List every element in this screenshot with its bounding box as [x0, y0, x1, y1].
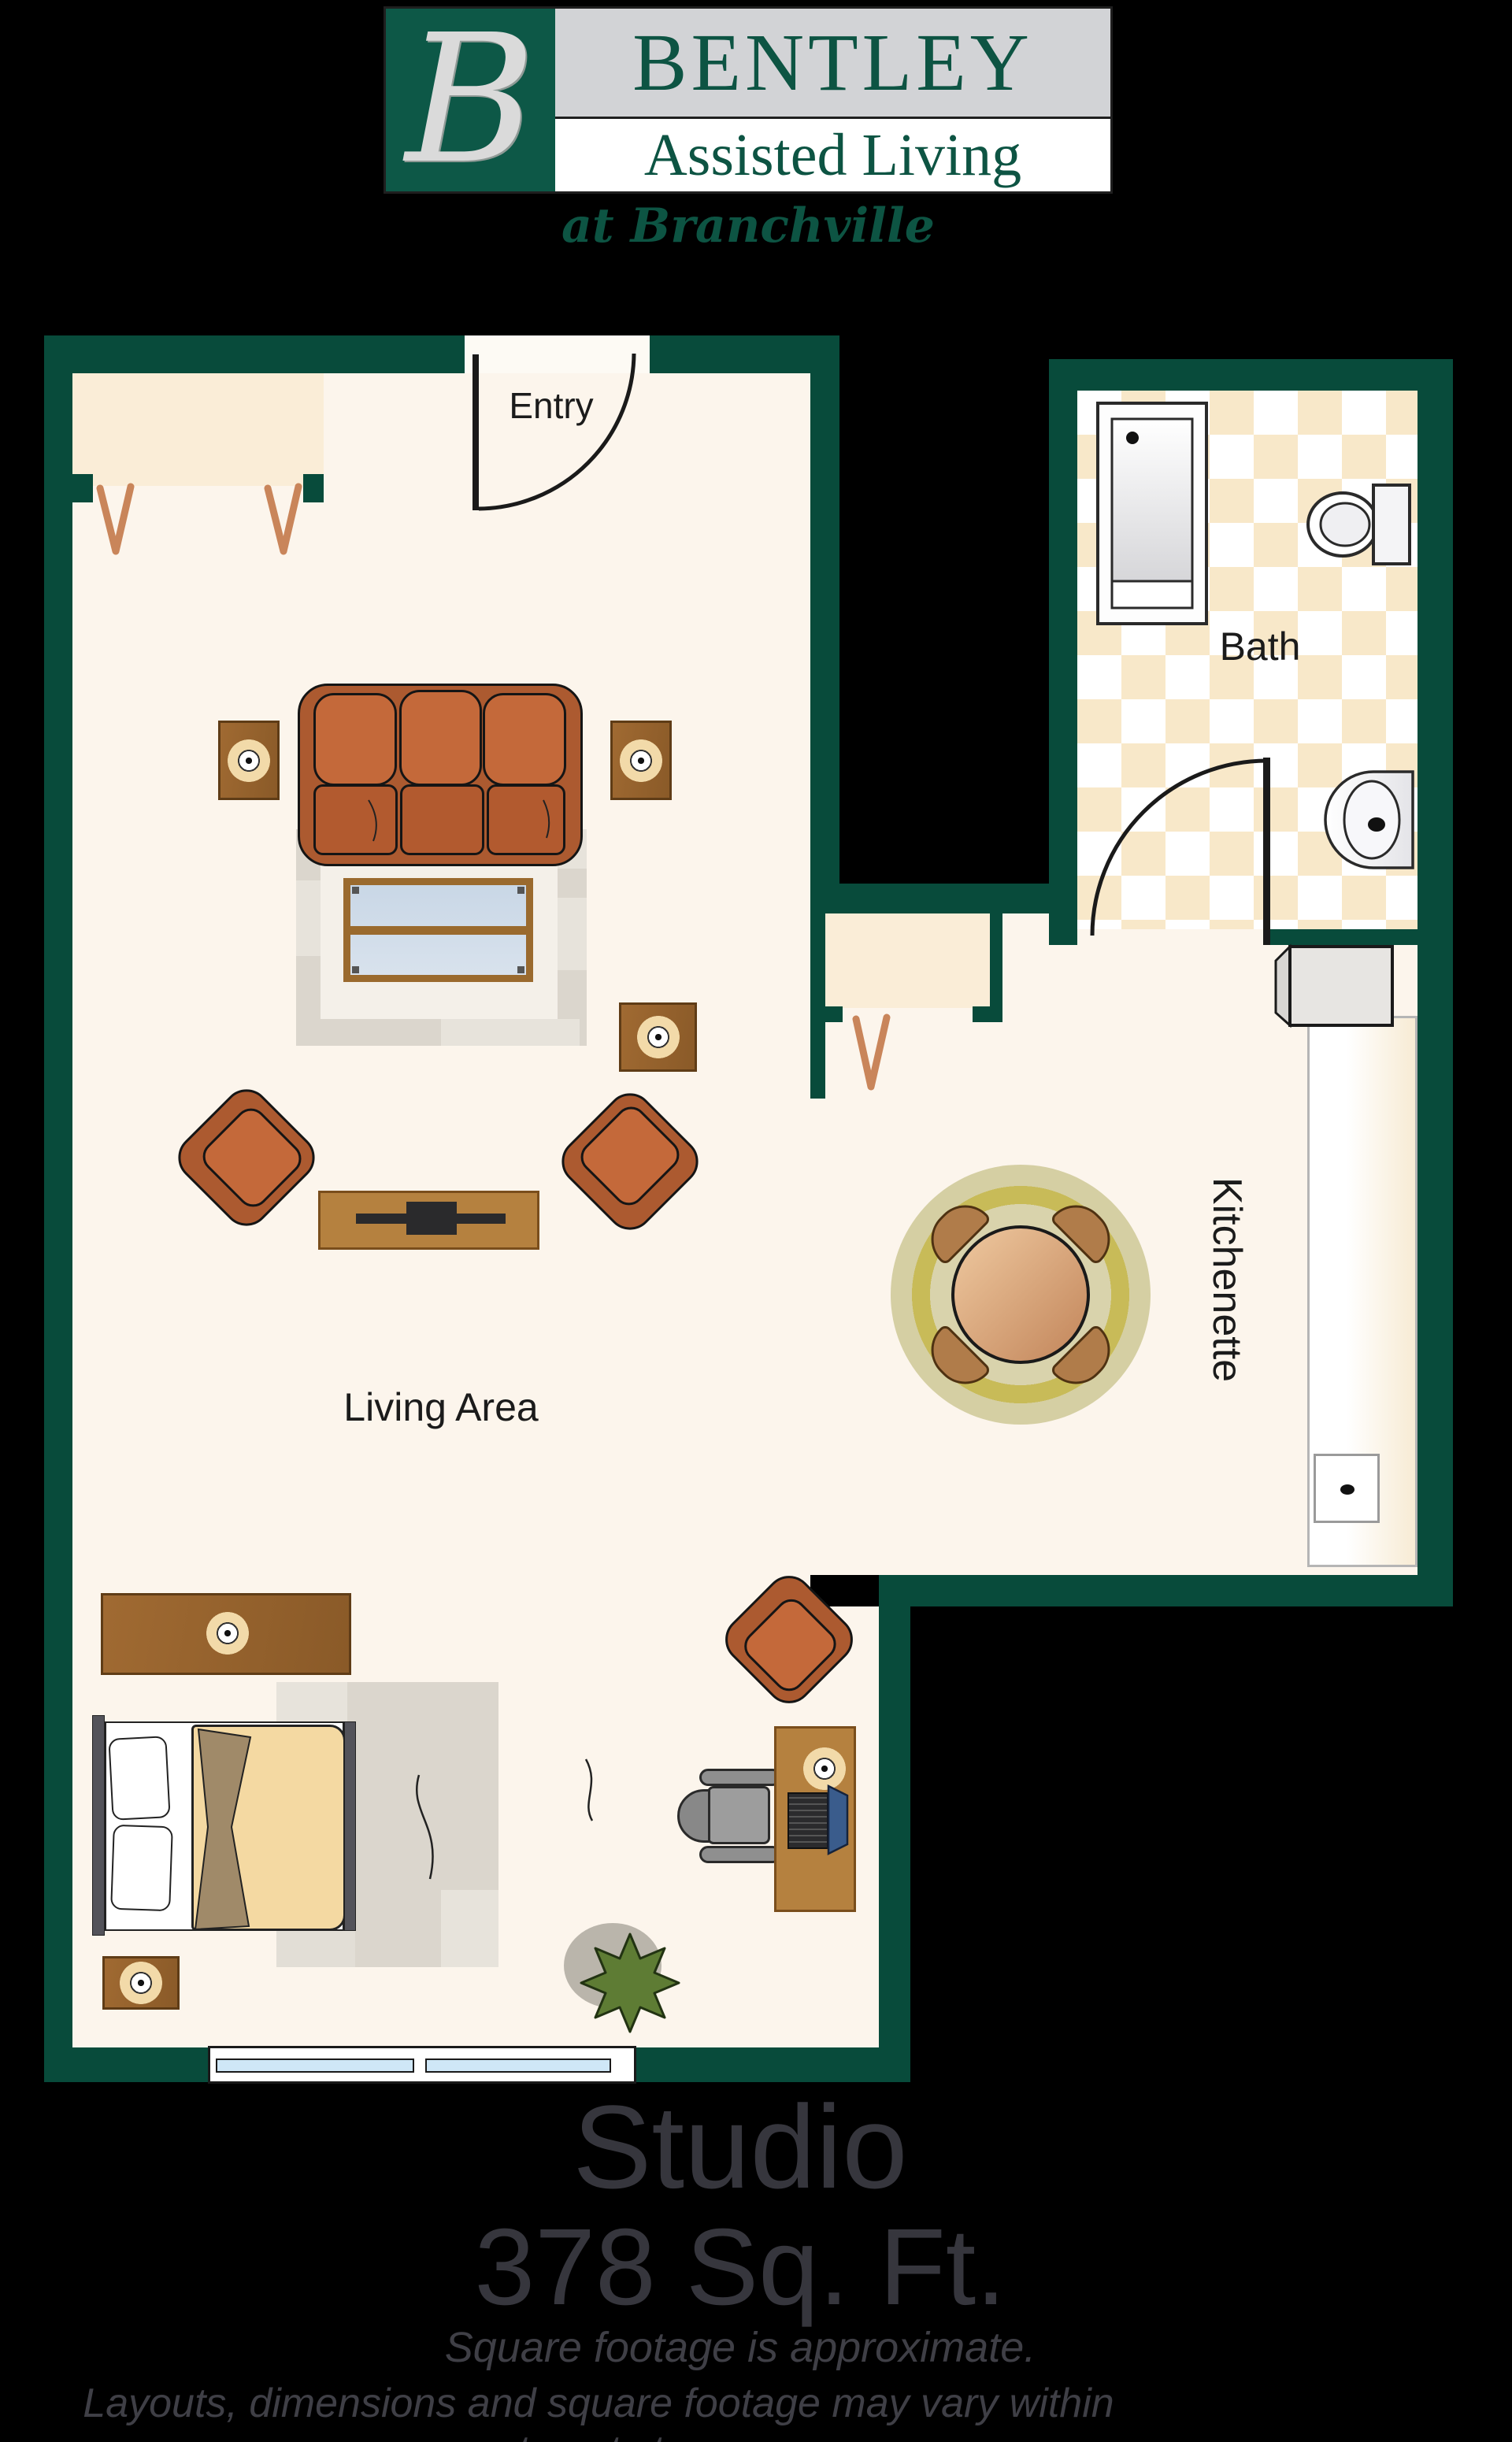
- plant-icon: [564, 1923, 679, 2032]
- plan-title: Studio: [0, 2079, 1480, 2215]
- entry-door-icon: [472, 354, 634, 510]
- fridge-icon: [1276, 947, 1392, 1025]
- bed-fold: [195, 1729, 250, 1929]
- bath-door-icon: [1092, 758, 1270, 945]
- plan-note-2: Layouts, dimensions and square footage m…: [0, 2380, 1197, 2442]
- laptop-screen: [828, 1786, 847, 1854]
- sofa-creases: [369, 800, 549, 841]
- floorplan-page: B BENTLEY Assisted Living at Branchville: [0, 0, 1512, 2442]
- bath-sink-icon: [1325, 772, 1413, 868]
- plan-vector-overlay: [0, 0, 1512, 2442]
- hanger-icon: [100, 487, 887, 1087]
- shower-icon: [1098, 403, 1206, 624]
- toilet-icon: [1308, 485, 1410, 564]
- bed-creases: [417, 1759, 592, 1879]
- plan-note-1: Square footage is approximate.: [0, 2323, 1480, 2372]
- plan-area: 378 Sq. Ft.: [0, 2205, 1480, 2330]
